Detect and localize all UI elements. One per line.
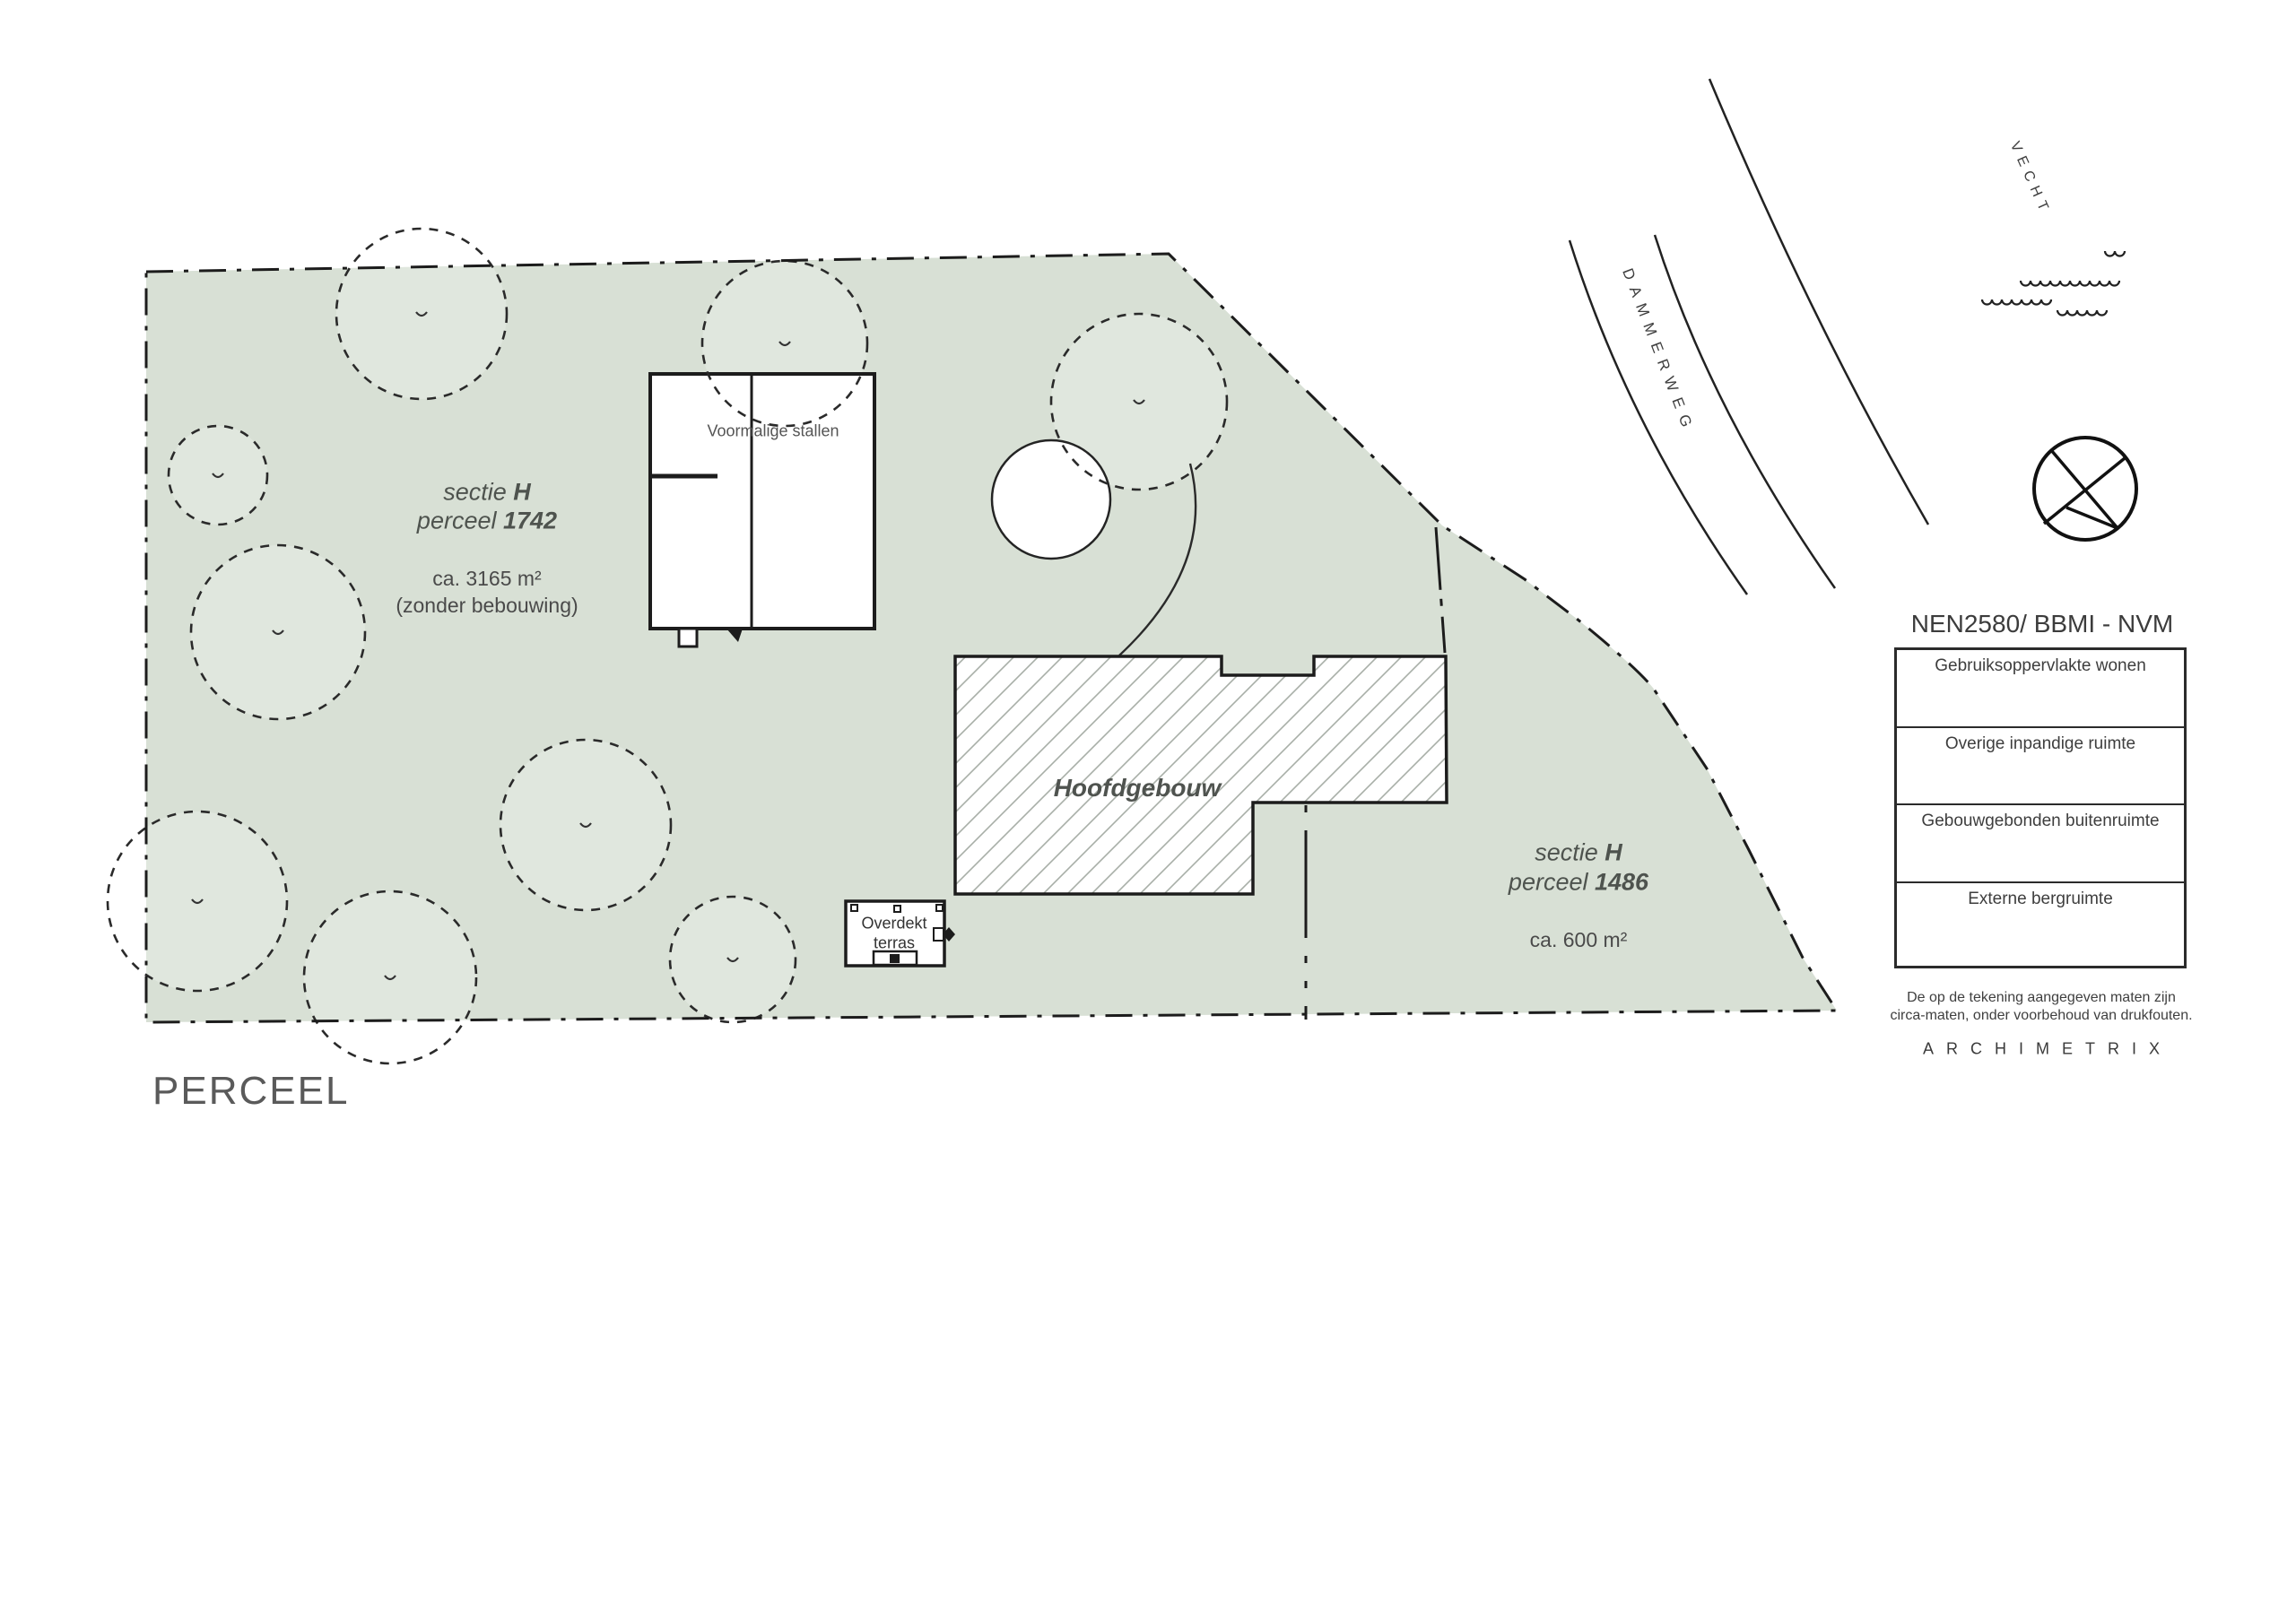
stables-label: Voormalige stallen bbox=[707, 422, 839, 441]
page-title: PERCEEL bbox=[152, 1069, 349, 1114]
legend-row-label: Overige inpandige ruimte bbox=[1945, 734, 2135, 754]
round-pond-feature bbox=[992, 440, 1110, 559]
legend-row-externe-bergruimte: Externe bergruimte bbox=[1897, 883, 2184, 961]
parcel-1742-area-note: (zonder bebouwing) bbox=[396, 594, 578, 617]
stables-building bbox=[650, 374, 874, 647]
parcel-1742-section-label: sectie H bbox=[443, 478, 531, 506]
legend-row-label: Gebouwgebonden buitenruimte bbox=[1921, 811, 2159, 831]
road-edge-lines bbox=[1570, 79, 1928, 595]
parcel-1486-area-label: ca. 600 m² bbox=[1530, 928, 1628, 951]
parcel-1486-section-label: sectie H bbox=[1535, 838, 1622, 866]
brand-archimetrix: ARCHIMETRIX bbox=[1923, 1040, 2172, 1059]
water-waves-icon bbox=[1982, 251, 2125, 316]
legend-table: Gebruiksoppervlakte wonen Overige inpand… bbox=[1894, 647, 2187, 968]
parcel-1486-number-label: perceel 1486 bbox=[1509, 868, 1648, 896]
terrace-label-line1: Overdekt bbox=[861, 915, 926, 933]
site-plan-canvas: sectie H perceel 1742 ca. 3165 m² (zonde… bbox=[0, 0, 2296, 1623]
parcel-1742-number-label: perceel 1742 bbox=[417, 507, 557, 534]
legend-row-label: Externe bergruimte bbox=[1968, 890, 2113, 909]
legend-row-label: Gebruiksoppervlakte wonen bbox=[1935, 656, 2146, 676]
disclaimer-line1: De op de tekening aangegeven maten zijn bbox=[1907, 990, 2176, 1006]
parcel-1742-area-label: ca. 3165 m² bbox=[432, 567, 541, 590]
terrace-label-line2: terras bbox=[874, 934, 915, 953]
legend-row-gebouwgebonden: Gebouwgebonden buitenruimte bbox=[1897, 805, 2184, 883]
legend-title: NEN2580/ BBMI - NVM bbox=[1911, 610, 2174, 638]
legend-row-overige-inpandige: Overige inpandige ruimte bbox=[1897, 728, 2184, 806]
disclaimer-line2: circa-maten, onder voorbehoud van drukfo… bbox=[1890, 1008, 2192, 1024]
legend-row-gebruiksoppervlakte: Gebruiksoppervlakte wonen bbox=[1897, 650, 2184, 728]
north-arrow-icon bbox=[2034, 438, 2136, 540]
main-building-label: Hoofdgebouw bbox=[1054, 774, 1222, 803]
